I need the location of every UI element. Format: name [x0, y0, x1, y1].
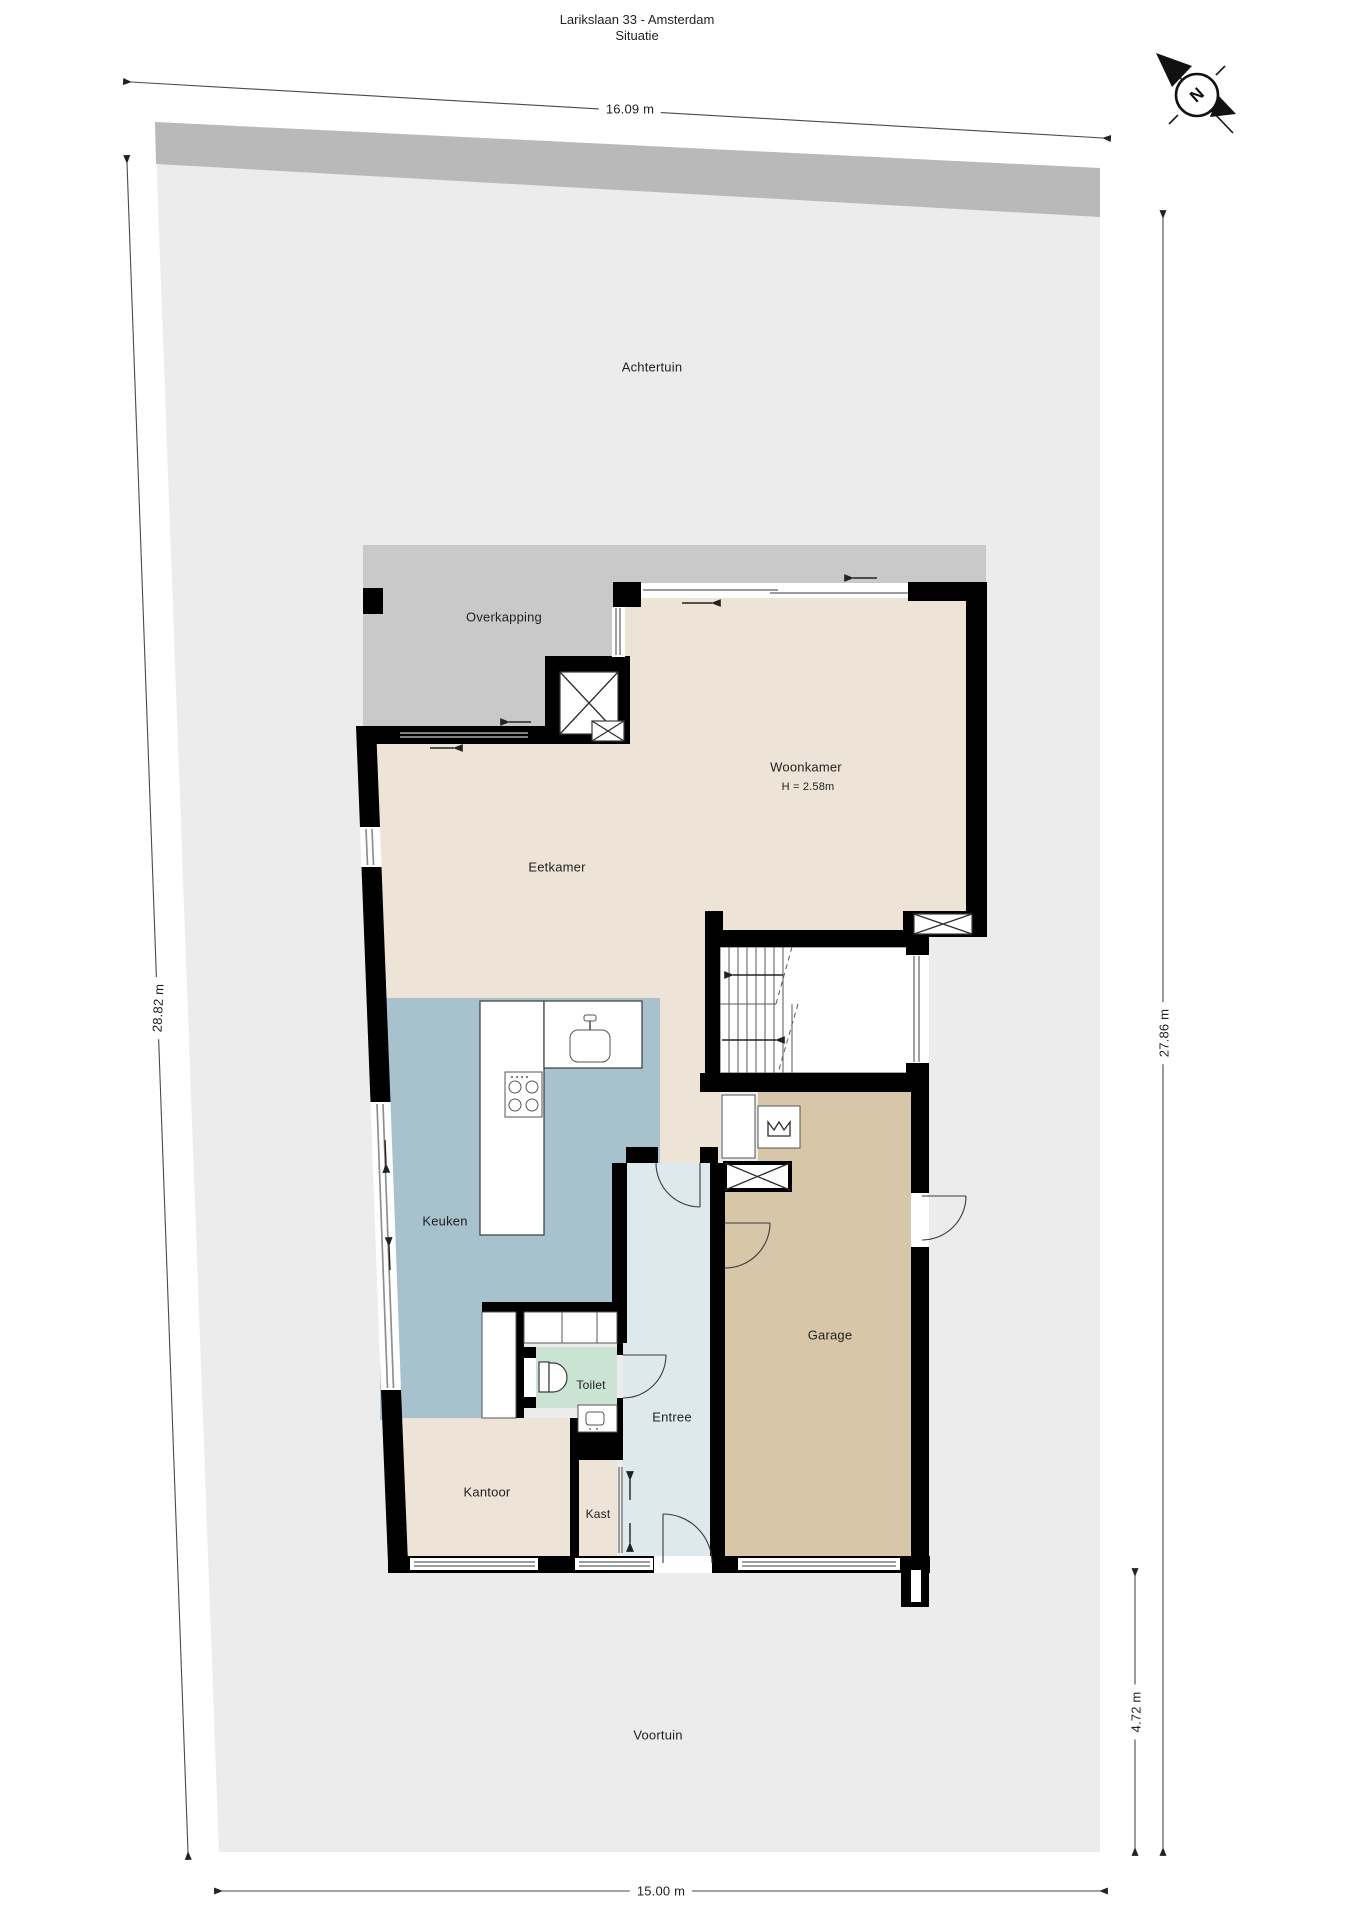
stove-icon: [505, 1072, 542, 1117]
wall-top-pillar: [613, 582, 641, 607]
toilet-kast-junction-wall: [578, 1432, 623, 1448]
label-toilet: Toilet: [576, 1378, 605, 1392]
dim-label-front-depth: 4.72 m: [1129, 1685, 1144, 1740]
floorplan-page: N Larikslaan 33 - Amsterdam Situatie Ach…: [0, 0, 1358, 1920]
garage-closet: [722, 1095, 755, 1158]
dim-label-bottom: 15.00 m: [630, 1884, 692, 1899]
label-garage: Garage: [808, 1328, 853, 1343]
garage-floor-b: [725, 1192, 911, 1568]
compass: N: [1156, 53, 1236, 133]
garage-right-wall-lower: [911, 1247, 929, 1568]
left-wall-a: [356, 726, 380, 827]
garage-sink-unit: [758, 1106, 800, 1148]
wall-right: [966, 583, 987, 937]
label-overkapping: Overkapping: [466, 610, 542, 625]
overkapping-bottom-wall: [363, 726, 547, 744]
dim-label-right: 27.86 m: [1157, 1002, 1172, 1064]
floorplan-drawing: N: [0, 0, 1358, 1920]
overkapping-post: [363, 588, 383, 614]
label-kantoor: Kantoor: [464, 1485, 511, 1500]
page-title: Larikslaan 33 - Amsterdam: [0, 12, 1274, 28]
label-entree: Entree: [652, 1410, 692, 1425]
dim-label-top: 16.09 m: [599, 102, 661, 117]
label-achtertuin: Achtertuin: [622, 360, 683, 375]
stair-landing: [720, 947, 913, 1073]
entree-floor: [623, 1163, 712, 1558]
wall-over-stairs: [705, 930, 913, 947]
label-woonkamer: Woonkamer: [770, 760, 842, 775]
closet-top-wall: [482, 1302, 623, 1312]
garage-right-wall-upper: [911, 1092, 929, 1193]
closet-row: [524, 1312, 617, 1343]
chimney-flue-small: [592, 721, 624, 741]
basin-niche: [578, 1405, 617, 1432]
label-kast: Kast: [586, 1507, 611, 1521]
label-voortuin: Voortuin: [633, 1728, 682, 1743]
page-subtitle: Situatie: [0, 28, 1274, 44]
label-keuken: Keuken: [422, 1214, 467, 1229]
dim-label-left: 28.82 m: [149, 977, 167, 1040]
kitchen-island: [480, 1001, 544, 1235]
staircase: [720, 947, 913, 1073]
meter-cupboard: [725, 1163, 790, 1190]
garage-left-wall: [710, 1163, 725, 1568]
label-woonkamer-height: H = 2.58m: [782, 781, 835, 793]
stairs-left-wall: [705, 947, 720, 1092]
title-block: Larikslaan 33 - Amsterdam Situatie: [0, 12, 1274, 44]
kantoor-right-wall: [570, 1418, 579, 1563]
garage-top-wall: [700, 1073, 929, 1092]
closet-column: [482, 1312, 516, 1418]
toilet-icon: [539, 1362, 567, 1392]
woonkamer-corner-vent: [914, 914, 972, 934]
label-eetkamer: Eetkamer: [528, 860, 585, 875]
